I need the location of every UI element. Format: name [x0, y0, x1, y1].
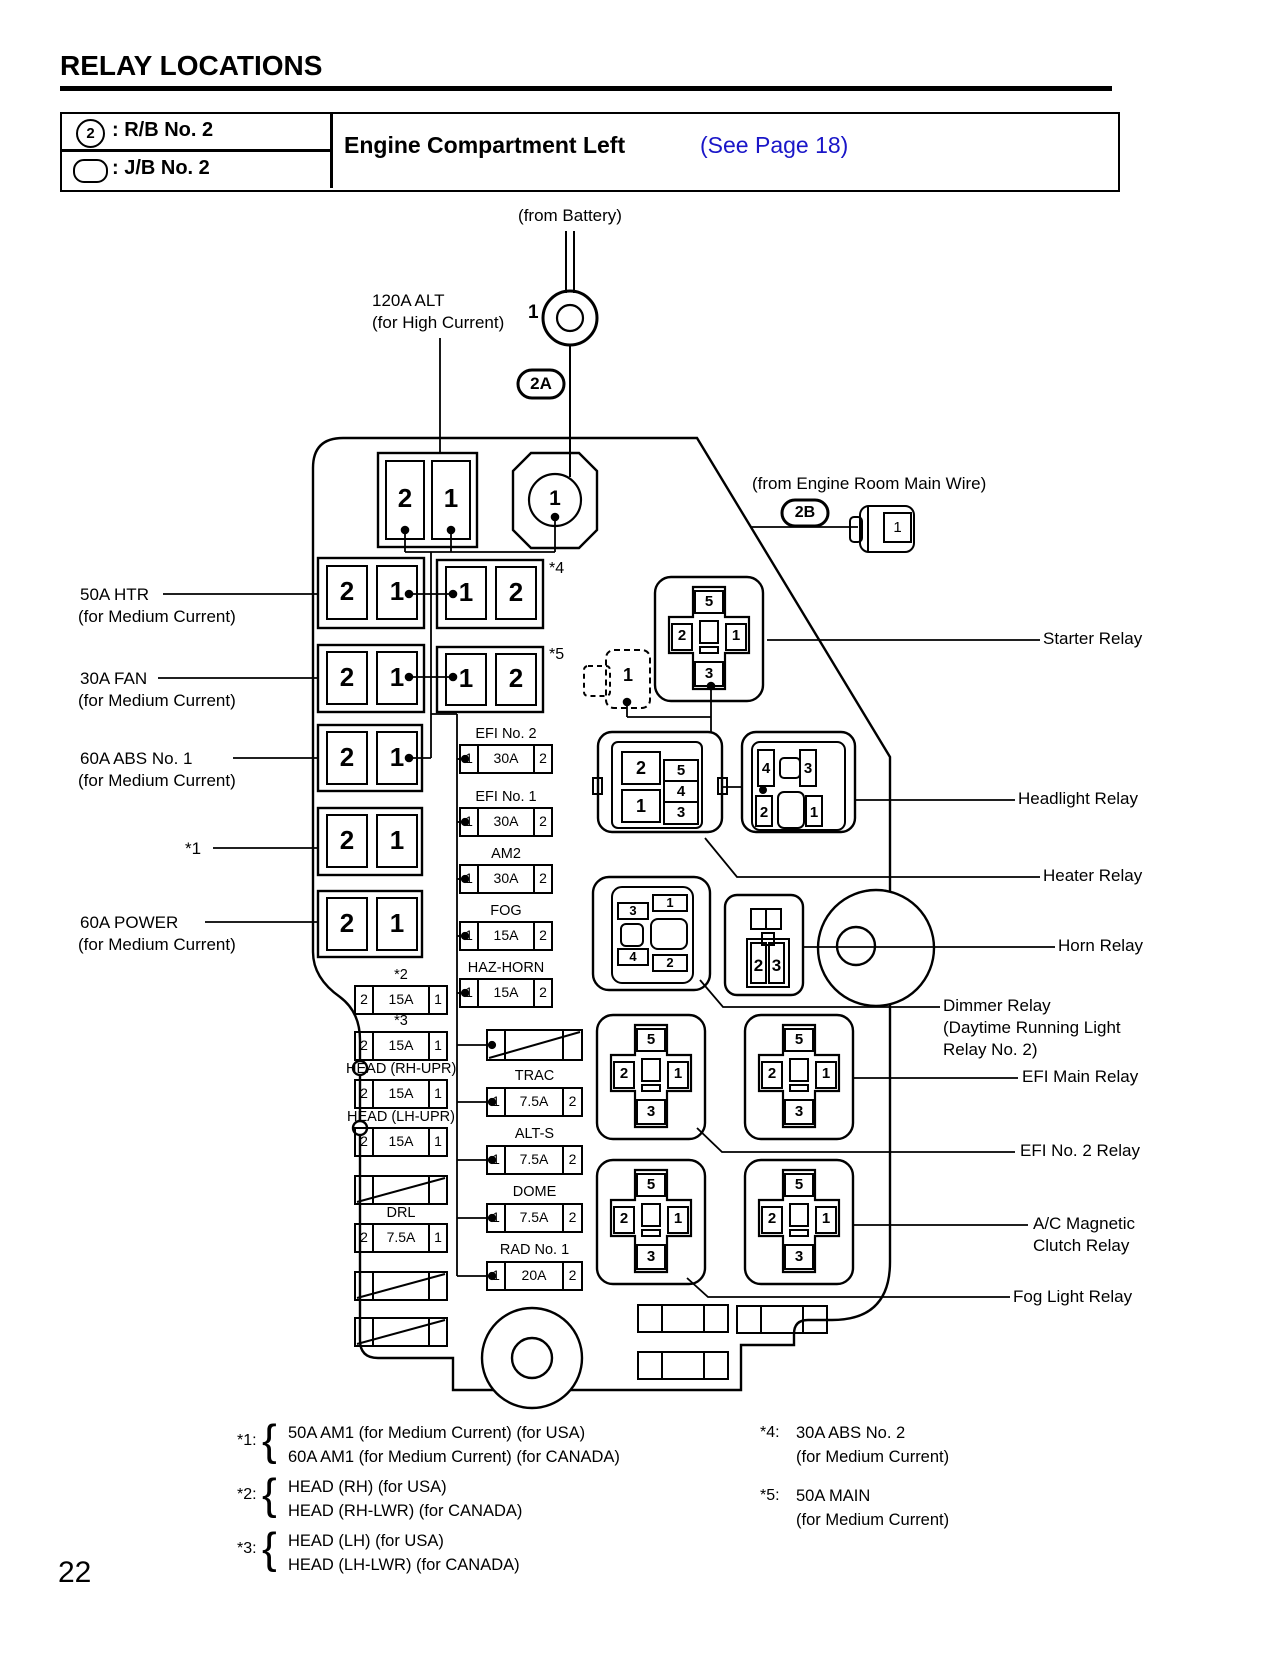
relay-pin: 2 [622, 758, 660, 779]
fuse-cell: 7.5A [505, 1151, 563, 1167]
fuse-num: 2 [327, 743, 367, 773]
fuse-num: 1 [446, 664, 486, 694]
fuse-cell: 15A [373, 1037, 429, 1053]
fuse-label: EFI No. 1 [460, 789, 552, 806]
fuse-cell: 1 [460, 813, 478, 829]
fuse-cell: 1 [460, 750, 478, 766]
relay-pin: 3 [664, 804, 698, 821]
footnote-line: HEAD (LH) (for USA) [288, 1532, 444, 1551]
fuse-num: 2 [384, 484, 426, 514]
fuse-cell: 1 [429, 991, 447, 1007]
relay-pin: 5 [637, 1176, 665, 1193]
callout-60a-power: 60A POWER [80, 913, 178, 933]
battery-pin-label: 1 [528, 302, 539, 324]
footnote-brace: { [262, 1419, 277, 1463]
relay-pin: 3 [637, 1248, 665, 1265]
fuse-cell: 2 [534, 870, 552, 886]
fuse-label: AM2 [460, 846, 552, 863]
relay-pin: 3 [695, 665, 723, 682]
relay-pin: 3 [769, 956, 784, 976]
badge-2a: 2A [518, 374, 564, 394]
bottom-strips [638, 1305, 827, 1379]
fuse-cell: 2 [355, 991, 373, 1007]
fuse-cell: 7.5A [373, 1229, 429, 1245]
footnote-star: *2: [237, 1486, 257, 1504]
footnote-line: (for Medium Current) [796, 1448, 949, 1467]
fuse-label: *2 [355, 967, 447, 984]
relay-pin: 2 [756, 804, 772, 821]
fuse-num: 1 [377, 743, 417, 773]
fuse-cell: 20A [505, 1267, 563, 1283]
fuse-label: *3 [355, 1013, 447, 1030]
callout-heater-relay: Heater Relay [1043, 866, 1142, 886]
footnote-line: (for Medium Current) [796, 1511, 949, 1530]
relay-pin: 1 [806, 804, 822, 821]
fuse-cell: 30A [478, 813, 534, 829]
relay-pin: 1 [816, 1210, 836, 1227]
fuse-cell: 30A [478, 870, 534, 886]
fuse-cell: 1 [429, 1133, 447, 1149]
relay-pin: 1 [726, 627, 746, 644]
relay-pin: 5 [664, 762, 698, 779]
fuse-cell: 7.5A [505, 1209, 563, 1225]
relay-pin: 3 [785, 1103, 813, 1120]
note-marker-4: *4 [549, 560, 564, 578]
fuse-cell: 2 [355, 1229, 373, 1245]
relay-heater [593, 732, 727, 832]
fuse-cell: 2 [563, 1267, 582, 1283]
callout-efi-no2-relay: EFI No. 2 Relay [1020, 1141, 1140, 1161]
relay-pin: 2 [653, 956, 687, 971]
relay-pin: 2 [614, 1065, 634, 1082]
relay-horn [725, 895, 803, 995]
footnote-line: 50A MAIN [796, 1487, 870, 1506]
callout-headlight-relay: Headlight Relay [1018, 789, 1138, 809]
fuse-label: HEAD (LH-UPR) [346, 1109, 456, 1126]
relay-pin: 1 [668, 1210, 688, 1227]
fuse-cell: 2 [355, 1085, 373, 1101]
note-marker-5: *5 [549, 646, 564, 664]
callout-50a-htr-2: (for Medium Current) [78, 607, 236, 627]
callout-ac-relay-2: Clutch Relay [1033, 1236, 1129, 1256]
fuse-cell: 2 [563, 1093, 582, 1109]
fuse-num: 2 [327, 909, 367, 939]
callout-dimmer-relay-2: (Daytime Running Light [943, 1018, 1121, 1038]
fuse-cell: 2 [563, 1209, 582, 1225]
callout-50a-htr: 50A HTR [80, 585, 149, 605]
relay-pin: 1 [668, 1065, 688, 1082]
relay-pin: 5 [785, 1031, 813, 1048]
page-number: 22 [58, 1556, 91, 1591]
fuse-cell: 1 [487, 1209, 505, 1225]
footnote-line: 50A AM1 (for Medium Current) (for USA) [288, 1424, 585, 1443]
relay-pin: 3 [637, 1103, 665, 1120]
relay-pin: 2 [614, 1210, 634, 1227]
callout-60a-power-2: (for Medium Current) [78, 935, 236, 955]
fuse-label: RAD No. 1 [487, 1242, 582, 1259]
relay-pin: 2 [762, 1065, 782, 1082]
relay-dimmer [593, 877, 710, 990]
callout-30a-fan-2: (for Medium Current) [78, 691, 236, 711]
fuse-cell: 1 [487, 1093, 505, 1109]
fuse-cell: 15A [373, 1133, 429, 1149]
fuse-num: 2 [496, 664, 536, 694]
fuse-label: HEAD (RH-UPR) [346, 1061, 456, 1078]
footnote-line: HEAD (LH-LWR) (for CANADA) [288, 1556, 520, 1575]
fuse-cell: 2 [355, 1037, 373, 1053]
footnote-star: *1: [237, 1432, 257, 1450]
relay-pin: 4 [758, 760, 774, 777]
battery-wire-icon [543, 231, 597, 477]
engine-room-wire-label: (from Engine Room Main Wire) [752, 474, 986, 494]
relay-pin: 3 [785, 1248, 813, 1265]
fuse-num: 1 [430, 484, 472, 514]
fuse-cell: 1 [460, 927, 478, 943]
footnote-line: 30A ABS No. 2 [796, 1424, 905, 1443]
fuse-num: 1 [377, 577, 417, 607]
relay-pin: 5 [695, 593, 723, 610]
dashed-connector-pin: 1 [606, 665, 650, 686]
fuse-label: EFI No. 2 [460, 726, 552, 743]
footnote-star: *5: [760, 1487, 780, 1505]
relay-pin: 2 [762, 1210, 782, 1227]
fuse-num: 1 [377, 826, 417, 856]
fuse-cell: 1 [460, 870, 478, 886]
fuse-num: 2 [327, 663, 367, 693]
fuse-cell: 1 [429, 1037, 447, 1053]
footnote-line: HEAD (RH-LWR) (for CANADA) [288, 1502, 522, 1521]
callout-dimmer-relay-1: Dimmer Relay [943, 996, 1051, 1016]
badge-2b: 2B [782, 504, 828, 522]
fuse-cell: 1 [429, 1085, 447, 1101]
fuse-num: 2 [327, 826, 367, 856]
callout-starter-relay: Starter Relay [1043, 629, 1142, 649]
relay-pin: 4 [664, 783, 698, 800]
callout-ac-relay-1: A/C Magnetic [1033, 1214, 1135, 1234]
fuse-cell: 2 [534, 750, 552, 766]
fuse-label: HAZ-HORN [460, 960, 552, 977]
relay-pin: 5 [637, 1031, 665, 1048]
diagram-art [0, 0, 1280, 1656]
relay-pin: 1 [816, 1065, 836, 1082]
fuse-cell: 15A [478, 984, 534, 1000]
alt-label-line1: 120A ALT [372, 291, 444, 311]
octagon-pin: 1 [529, 487, 581, 511]
mounting-boss-right [818, 890, 934, 1006]
footnote-line: 60A AM1 (for Medium Current) (for CANADA… [288, 1448, 620, 1467]
relay-pin: 2 [751, 956, 766, 976]
fuse-cell: 7.5A [505, 1093, 563, 1109]
fuse-cell: 1 [487, 1151, 505, 1167]
relay-pin: 2 [672, 627, 692, 644]
alt-label-line2: (for High Current) [372, 313, 504, 333]
fuse-cell: 15A [478, 927, 534, 943]
fuse-cell: 1 [460, 984, 478, 1000]
fuse-label: FOG [460, 903, 552, 920]
engine-room-pin: 1 [884, 519, 911, 536]
fuse-label: ALT-S [487, 1126, 582, 1143]
fuse-cell: 30A [478, 750, 534, 766]
callout-dimmer-relay-3: Relay No. 2) [943, 1040, 1037, 1060]
footnote-line: HEAD (RH) (for USA) [288, 1478, 447, 1497]
relay-pin: 4 [618, 950, 648, 965]
fuse-cell: 15A [373, 1085, 429, 1101]
relay-pin: 1 [622, 796, 660, 817]
fuse-label: DOME [487, 1184, 582, 1201]
manual-page: RELAY LOCATIONS 2 : R/B No. 2 : J/B No. … [0, 0, 1280, 1656]
fuse-cell: 15A [373, 991, 429, 1007]
fuse-num: 2 [496, 578, 536, 608]
fuse-num: 1 [446, 578, 486, 608]
relay-pin: 5 [785, 1176, 813, 1193]
callout-60a-abs-2: (for Medium Current) [78, 771, 236, 791]
fuse-cell: 2 [534, 984, 552, 1000]
relay-pin: 1 [653, 896, 687, 911]
fuse-cell: 2 [563, 1151, 582, 1167]
footnote-brace: { [262, 1473, 277, 1517]
fuse-cell: 2 [534, 927, 552, 943]
footnote-star: *3: [237, 1540, 257, 1558]
callout-efi-main-relay: EFI Main Relay [1022, 1067, 1138, 1087]
fuse-cell: 1 [487, 1267, 505, 1283]
fuse-cell: 2 [355, 1133, 373, 1149]
callout-60a-abs: 60A ABS No. 1 [80, 749, 192, 769]
relay-pin: 3 [800, 760, 816, 777]
from-battery-label: (from Battery) [490, 206, 650, 226]
callout-fog-relay: Fog Light Relay [1013, 1287, 1132, 1307]
footnote-star: *4: [760, 1424, 780, 1442]
callout-30a-fan: 30A FAN [80, 669, 147, 689]
fuse-num: 1 [377, 663, 417, 693]
fuse-num: 1 [377, 909, 417, 939]
fuse-cell: 2 [534, 813, 552, 829]
fuse-num: 2 [327, 577, 367, 607]
relay-pin: 3 [618, 904, 648, 919]
fuse-label: TRAC [487, 1068, 582, 1085]
callout-horn-relay: Horn Relay [1058, 936, 1143, 956]
callout-star1: *1 [185, 839, 201, 859]
footnote-brace: { [262, 1527, 277, 1571]
fuse-label: DRL [355, 1205, 447, 1222]
mounting-boss-bottom [482, 1308, 582, 1408]
fuse-cell: 1 [429, 1229, 447, 1245]
